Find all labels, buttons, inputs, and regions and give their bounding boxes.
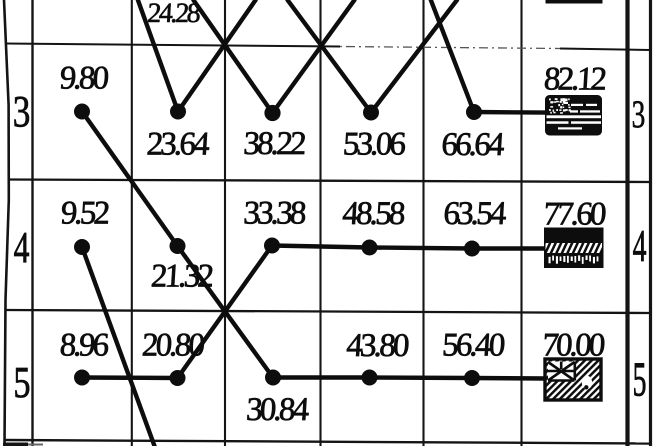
svg-text:23.64: 23.64 xyxy=(146,127,211,163)
svg-text:5: 5 xyxy=(633,353,647,407)
svg-text:82.12: 82.12 xyxy=(543,62,607,98)
svg-text:4: 4 xyxy=(633,222,647,271)
svg-text:3: 3 xyxy=(13,86,31,136)
svg-text:9.80: 9.80 xyxy=(59,61,110,97)
svg-text:3: 3 xyxy=(632,93,646,136)
svg-text:53.06: 53.06 xyxy=(342,127,407,163)
svg-text:9.52: 9.52 xyxy=(60,196,110,232)
svg-text:56.40: 56.40 xyxy=(441,328,506,364)
svg-text:4: 4 xyxy=(14,224,30,272)
svg-text:8.96: 8.96 xyxy=(59,328,110,364)
svg-text:38.22: 38.22 xyxy=(242,126,306,162)
svg-text:24.28: 24.28 xyxy=(147,0,201,29)
svg-text:33.38: 33.38 xyxy=(242,196,307,232)
svg-text:77.60: 77.60 xyxy=(542,197,607,233)
svg-text:48.58: 48.58 xyxy=(341,196,406,232)
svg-text:43.80: 43.80 xyxy=(345,328,410,364)
svg-text:21.32: 21.32 xyxy=(150,259,214,295)
svg-text:20.80: 20.80 xyxy=(141,328,206,364)
svg-text:5: 5 xyxy=(13,358,30,407)
svg-text:63.54: 63.54 xyxy=(442,196,507,232)
svg-text:66.64: 66.64 xyxy=(440,127,505,163)
svg-text:30.84: 30.84 xyxy=(245,392,310,428)
